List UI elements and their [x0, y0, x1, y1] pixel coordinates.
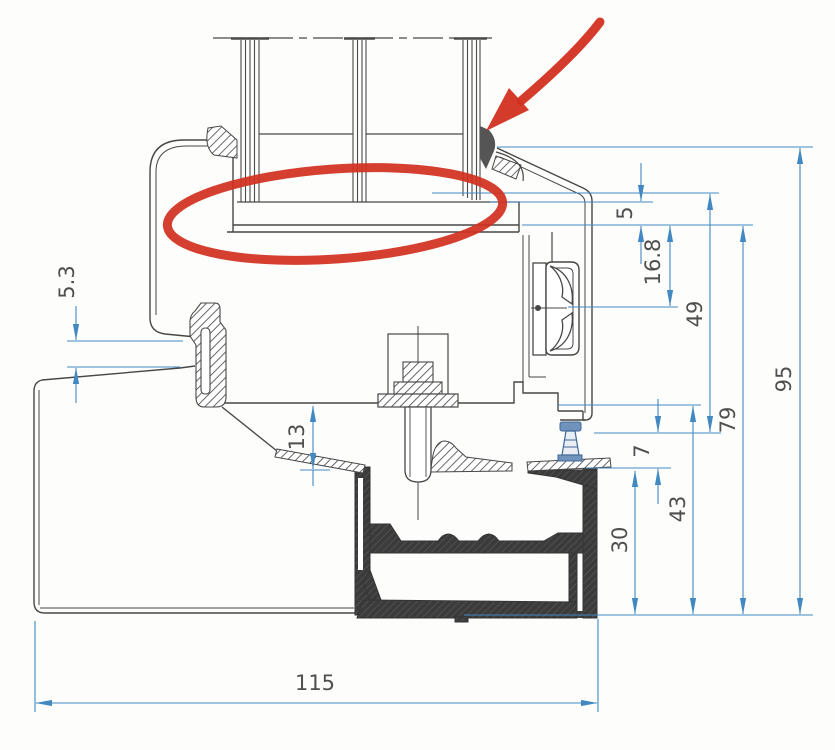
dim-79-label: 79 [716, 407, 740, 434]
red-ellipse-annotation [164, 157, 505, 270]
dim-53-label: 5.3 [55, 265, 79, 298]
dim-7-label: 7 [630, 444, 654, 457]
dim-43-label: 43 [666, 496, 690, 523]
dim-13-label: 13 [285, 424, 309, 451]
dim-5-label: 5 [613, 206, 637, 219]
expander-clip [558, 422, 582, 461]
technical-drawing: 5.3 5 16.8 49 79 95 7 43 30 13 115 [0, 0, 835, 750]
center-gasket [190, 303, 226, 407]
dim-168-label: 16.8 [641, 239, 665, 286]
red-arrow-stem [521, 22, 600, 101]
screenshot-root: 5.3 5 16.8 49 79 95 7 43 30 13 115 [0, 0, 835, 750]
roller-clip-channel [531, 262, 579, 355]
outer-gasket [480, 126, 523, 181]
dim-30-label: 30 [608, 527, 632, 554]
screw-assembly [378, 326, 458, 520]
dim-115-label: 115 [295, 671, 335, 695]
glazing-bead-left [207, 126, 237, 158]
dim-95-label: 95 [772, 366, 796, 393]
sill-profile [355, 464, 597, 622]
dim-49-label: 49 [683, 301, 707, 328]
